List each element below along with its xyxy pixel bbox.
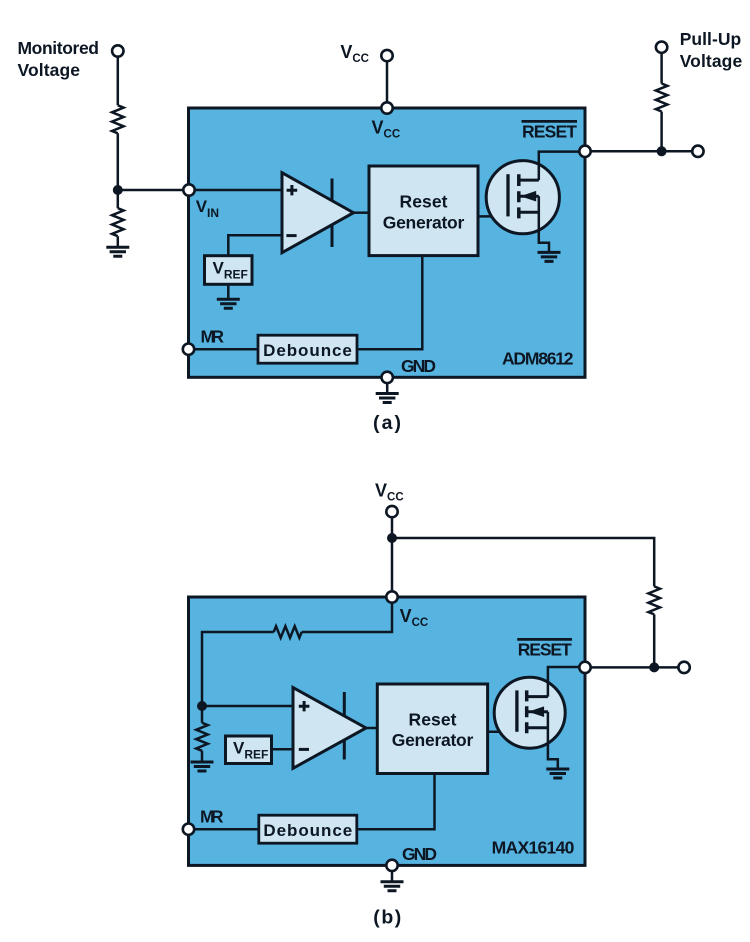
svg-text:Reset: Reset	[409, 709, 457, 729]
svg-text:GND: GND	[402, 844, 437, 864]
svg-text:(a): (a)	[373, 412, 401, 434]
svg-text:MAX16140: MAX16140	[492, 837, 575, 857]
svg-text:MR: MR	[200, 807, 224, 827]
svg-text:Pull-Up: Pull-Up	[680, 29, 742, 49]
svg-text:GND: GND	[401, 356, 436, 376]
svg-text:Generator: Generator	[383, 212, 465, 232]
svg-text:Debounce: Debounce	[263, 821, 352, 840]
svg-text:Generator: Generator	[392, 730, 474, 750]
svg-text:Voltage: Voltage	[680, 51, 743, 71]
svg-text:Voltage: Voltage	[18, 60, 81, 80]
svg-text:RESET: RESET	[522, 121, 577, 141]
svg-text:ADM8612: ADM8612	[502, 349, 574, 369]
svg-text:MR: MR	[201, 327, 225, 347]
svg-text:Debounce: Debounce	[263, 341, 352, 360]
svg-text:Reset: Reset	[400, 192, 448, 212]
svg-text:Monitored: Monitored	[18, 38, 100, 58]
svg-text:(b): (b)	[373, 907, 401, 929]
svg-text:RESET: RESET	[518, 639, 572, 659]
